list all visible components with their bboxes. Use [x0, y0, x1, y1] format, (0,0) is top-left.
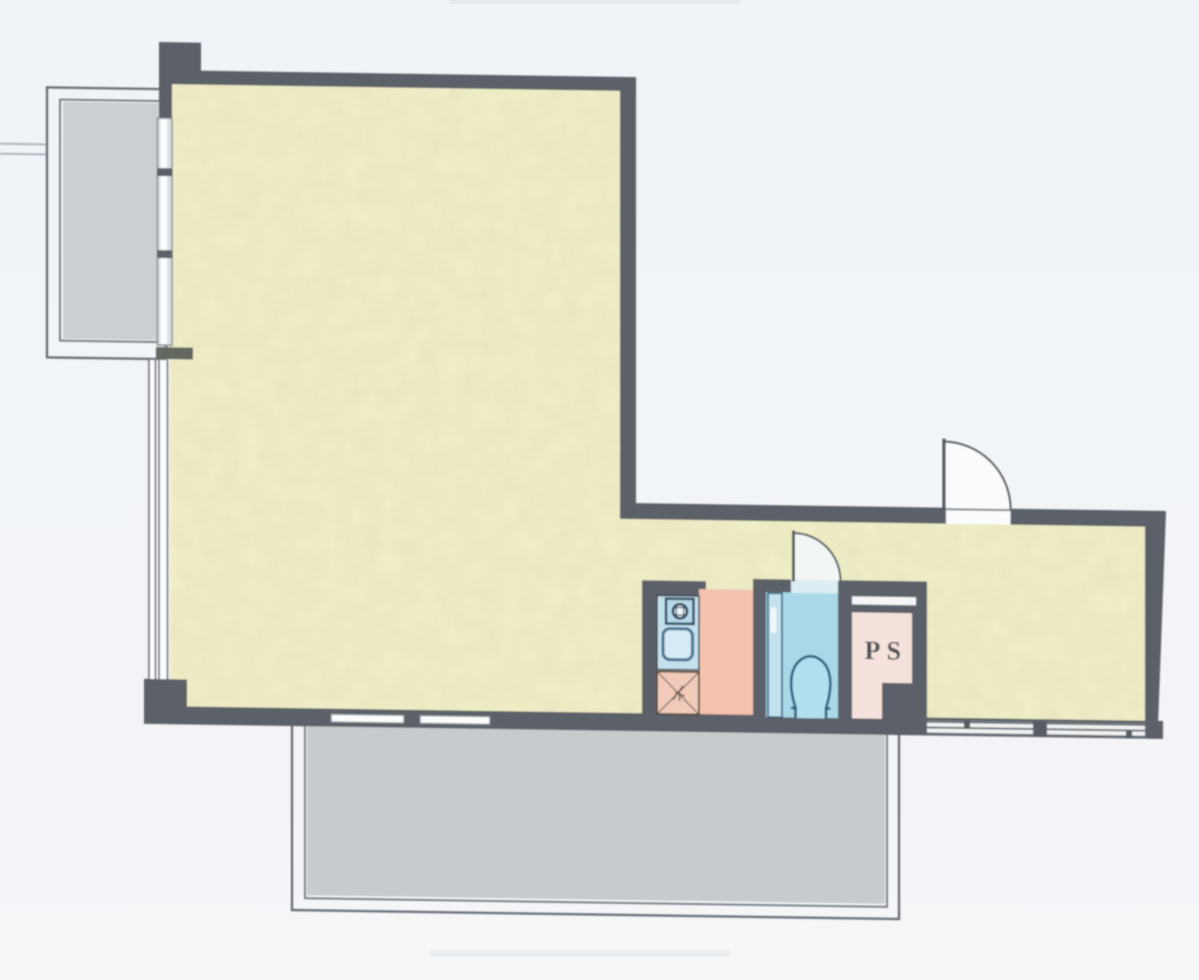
svg-text:S: S — [887, 636, 901, 665]
svg-text:P: P — [865, 636, 881, 665]
